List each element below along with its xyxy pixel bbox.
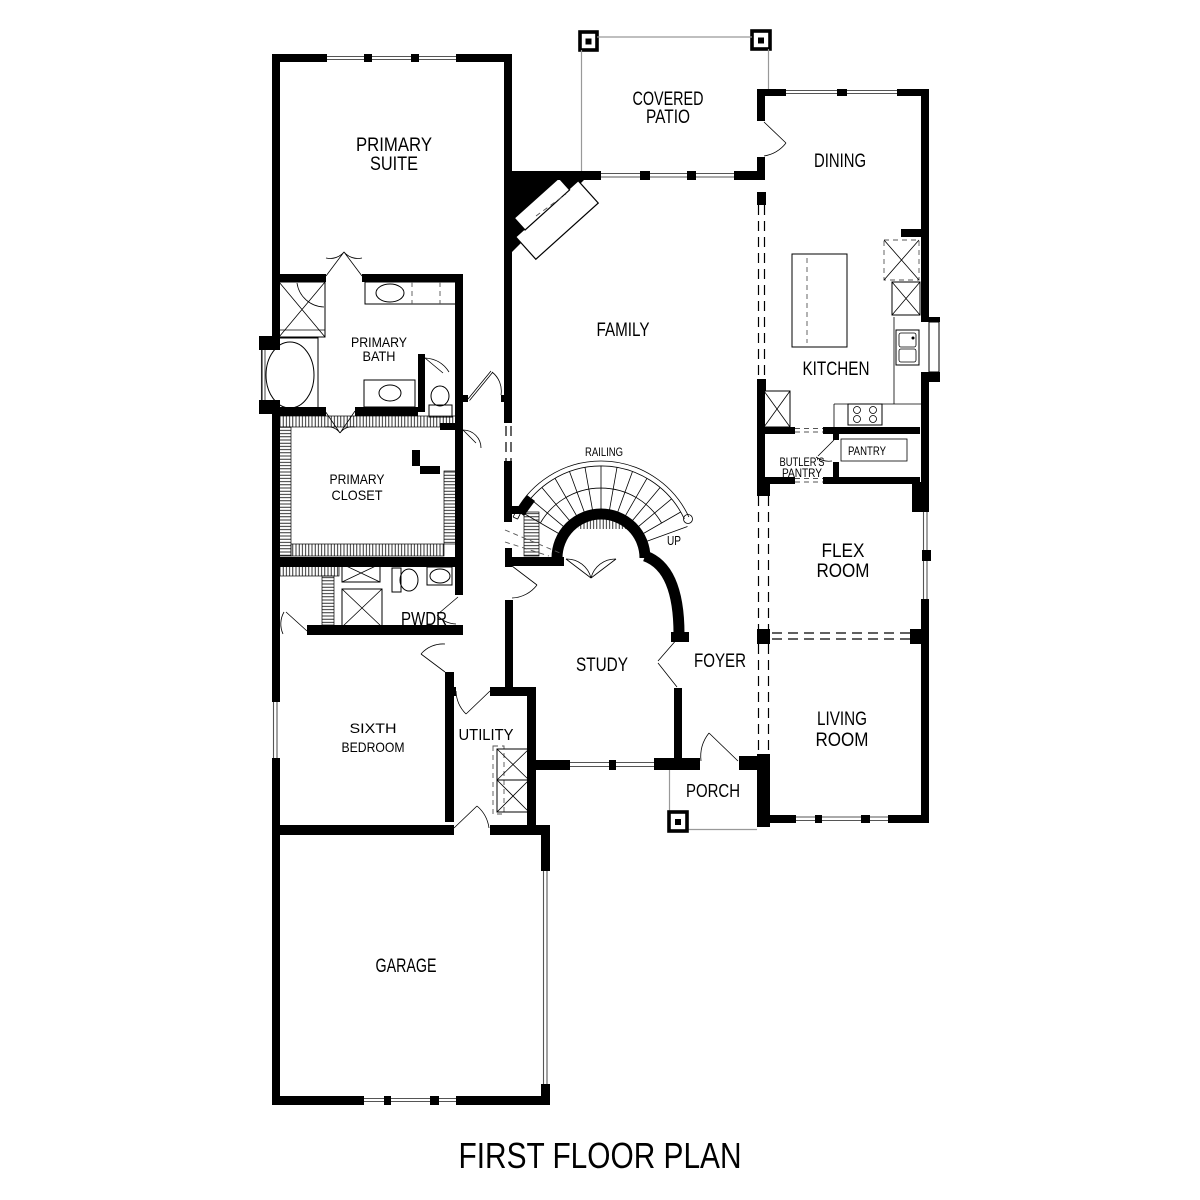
svg-text:SUITE: SUITE	[370, 154, 418, 175]
svg-text:FLEX: FLEX	[822, 541, 865, 562]
svg-text:BATH: BATH	[363, 348, 396, 364]
svg-text:PRIMARY: PRIMARY	[330, 471, 386, 487]
svg-text:ROOM: ROOM	[816, 730, 869, 751]
svg-text:PANTRY: PANTRY	[782, 466, 822, 480]
svg-text:SIXTH: SIXTH	[350, 720, 397, 736]
svg-text:DINING: DINING	[814, 151, 866, 172]
svg-text:UP: UP	[667, 533, 681, 548]
svg-text:ROOM: ROOM	[817, 561, 870, 582]
svg-text:FIRST FLOOR PLAN: FIRST FLOOR PLAN	[459, 1135, 742, 1176]
svg-text:PRIMARY: PRIMARY	[356, 135, 432, 156]
svg-text:FOYER: FOYER	[694, 651, 746, 672]
svg-text:STUDY: STUDY	[576, 655, 628, 676]
svg-text:PATIO: PATIO	[646, 107, 690, 128]
svg-text:FAMILY: FAMILY	[597, 320, 650, 341]
svg-text:GARAGE: GARAGE	[376, 956, 437, 977]
svg-text:RAILING: RAILING	[585, 445, 623, 459]
svg-text:UTILITY: UTILITY	[459, 727, 514, 744]
svg-text:BEDROOM: BEDROOM	[342, 739, 405, 755]
svg-text:PWDR: PWDR	[401, 609, 447, 629]
svg-text:KITCHEN: KITCHEN	[803, 359, 870, 380]
svg-text:LIVING: LIVING	[817, 709, 867, 730]
svg-text:PANTRY: PANTRY	[848, 444, 886, 458]
svg-text:PORCH: PORCH	[686, 781, 740, 801]
svg-text:CLOSET: CLOSET	[332, 487, 383, 503]
